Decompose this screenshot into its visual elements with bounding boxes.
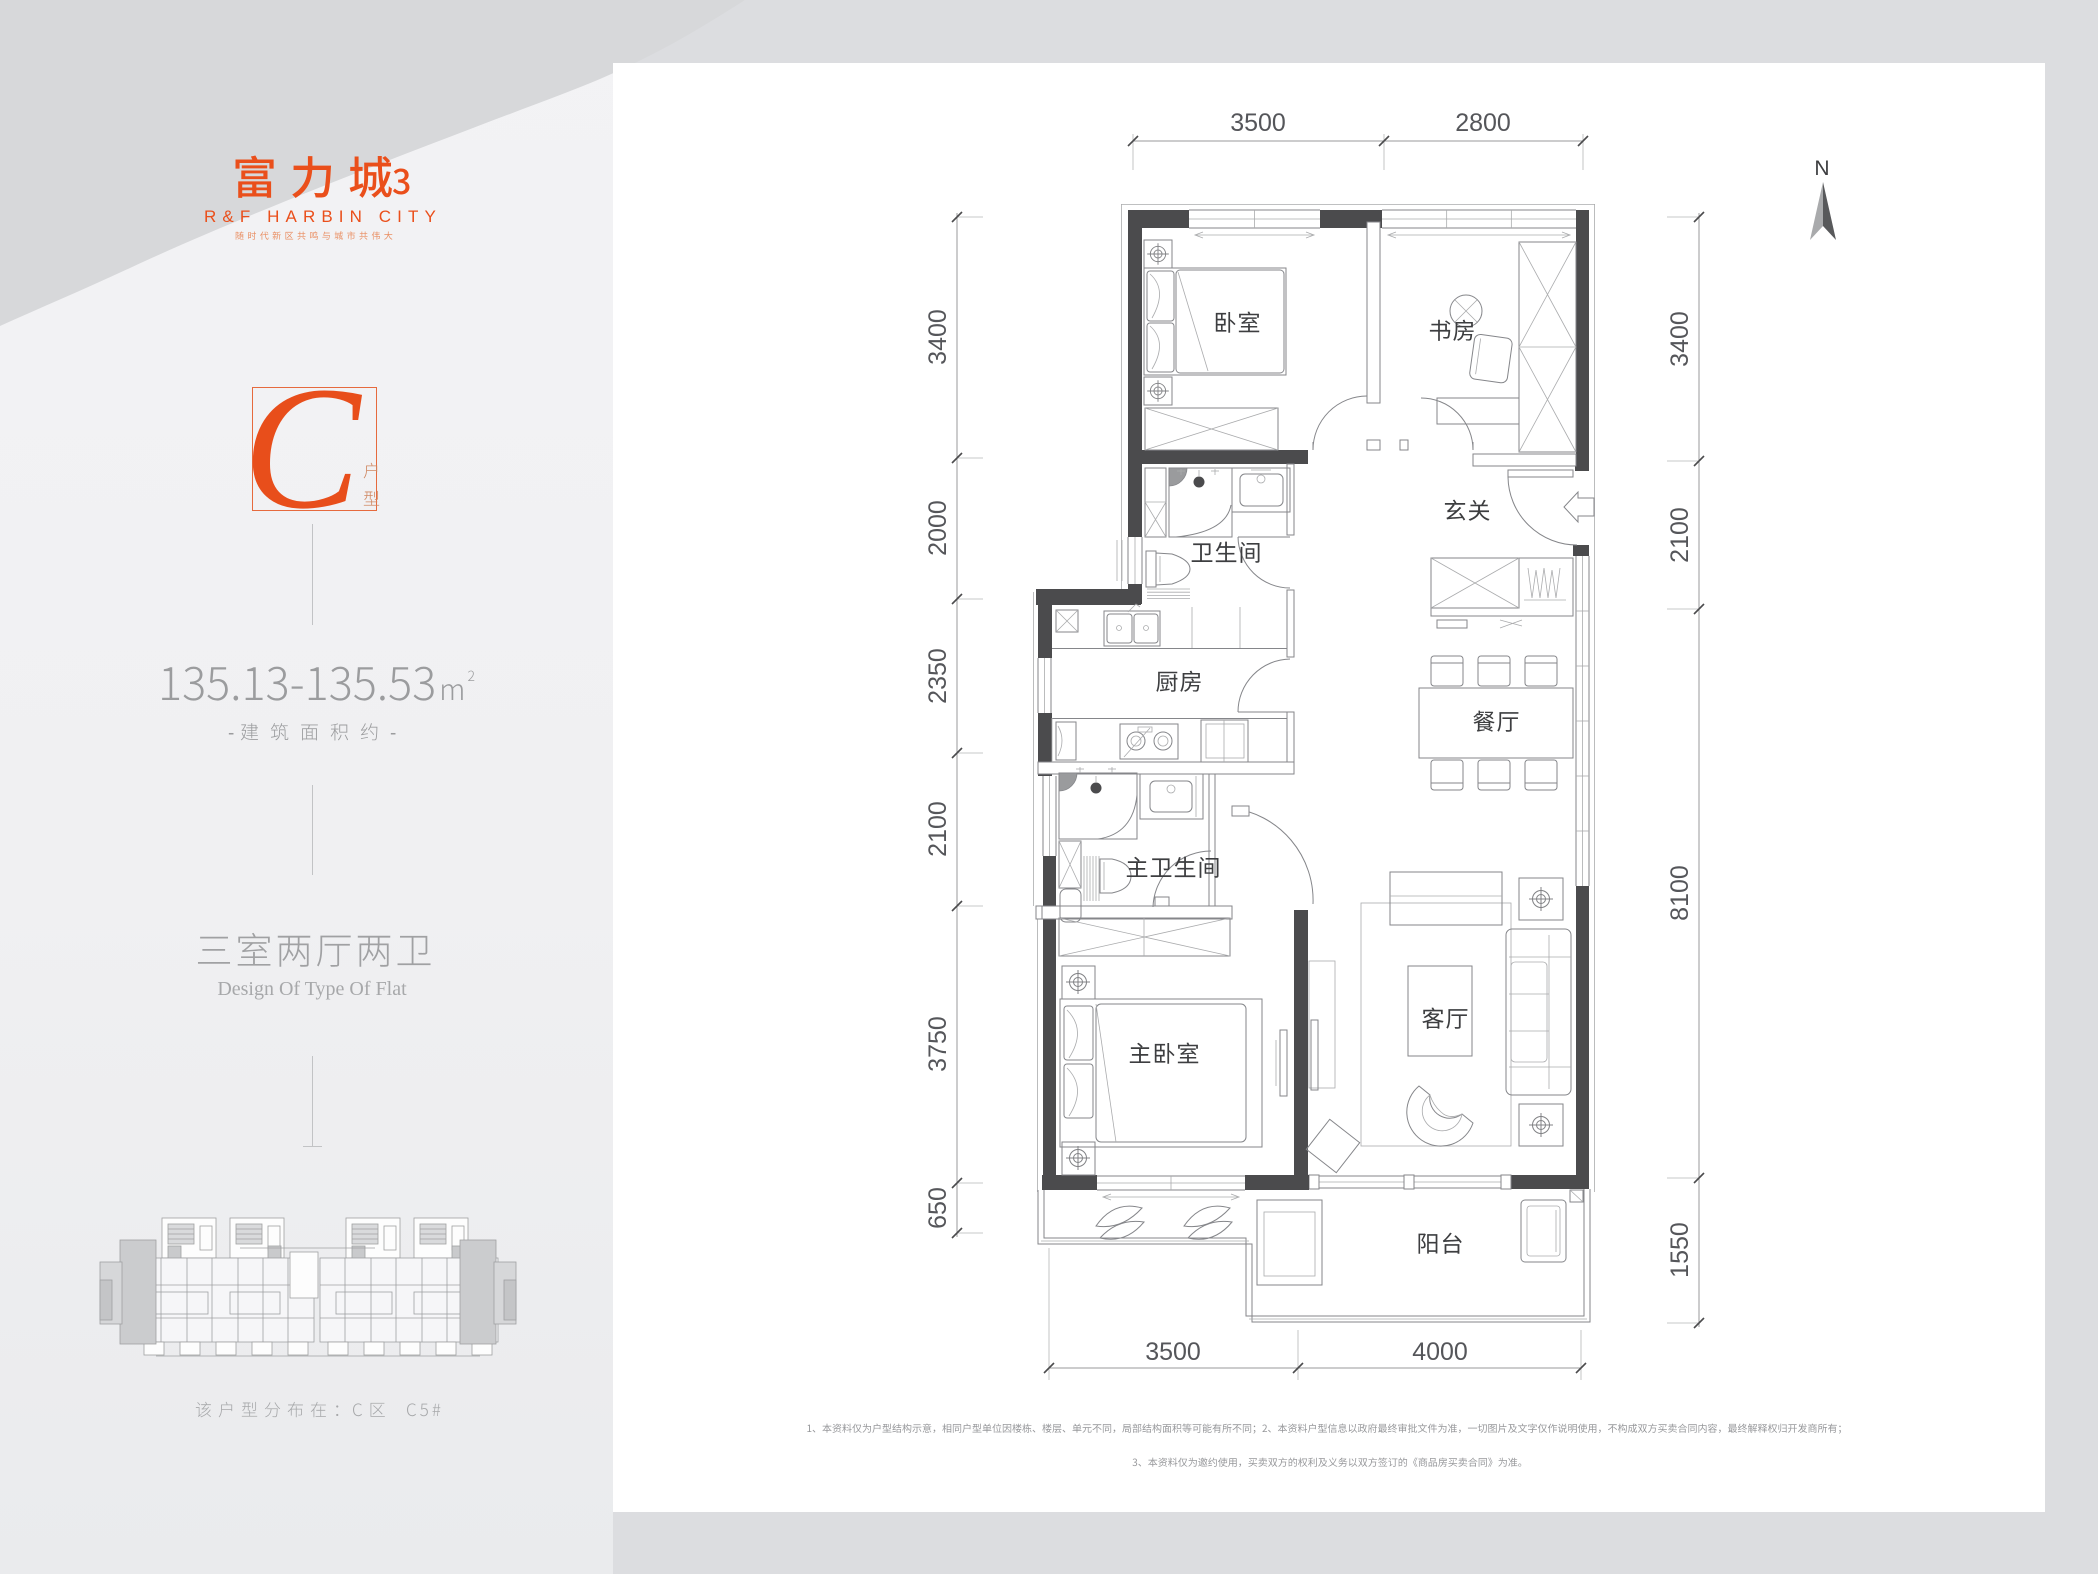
svg-text:650: 650 [924,1187,952,1229]
svg-text:C: C [243,351,363,546]
svg-text:Design Of Type Of Flat: Design Of Type Of Flat [217,978,407,1000]
svg-text:-: - [390,723,396,744]
svg-text:N: N [1814,157,1829,180]
svg-text:1550: 1550 [1666,1222,1694,1278]
svg-text:2100: 2100 [924,801,952,857]
svg-text:-: - [228,723,234,744]
svg-text:2000: 2000 [924,500,952,556]
svg-text:3500: 3500 [1145,1338,1201,1366]
svg-text:3750: 3750 [924,1016,952,1072]
svg-text:3500: 3500 [1230,109,1286,137]
svg-text:3400: 3400 [1666,311,1694,367]
svg-text:2350: 2350 [924,648,952,704]
svg-text:2800: 2800 [1455,109,1511,137]
svg-text:R&F HARBIN CITY: R&F HARBIN CITY [204,207,442,226]
svg-text:2100: 2100 [1666,507,1694,563]
svg-text:3400: 3400 [924,309,952,365]
svg-text:4000: 4000 [1412,1338,1468,1366]
svg-text:8100: 8100 [1666,865,1694,921]
